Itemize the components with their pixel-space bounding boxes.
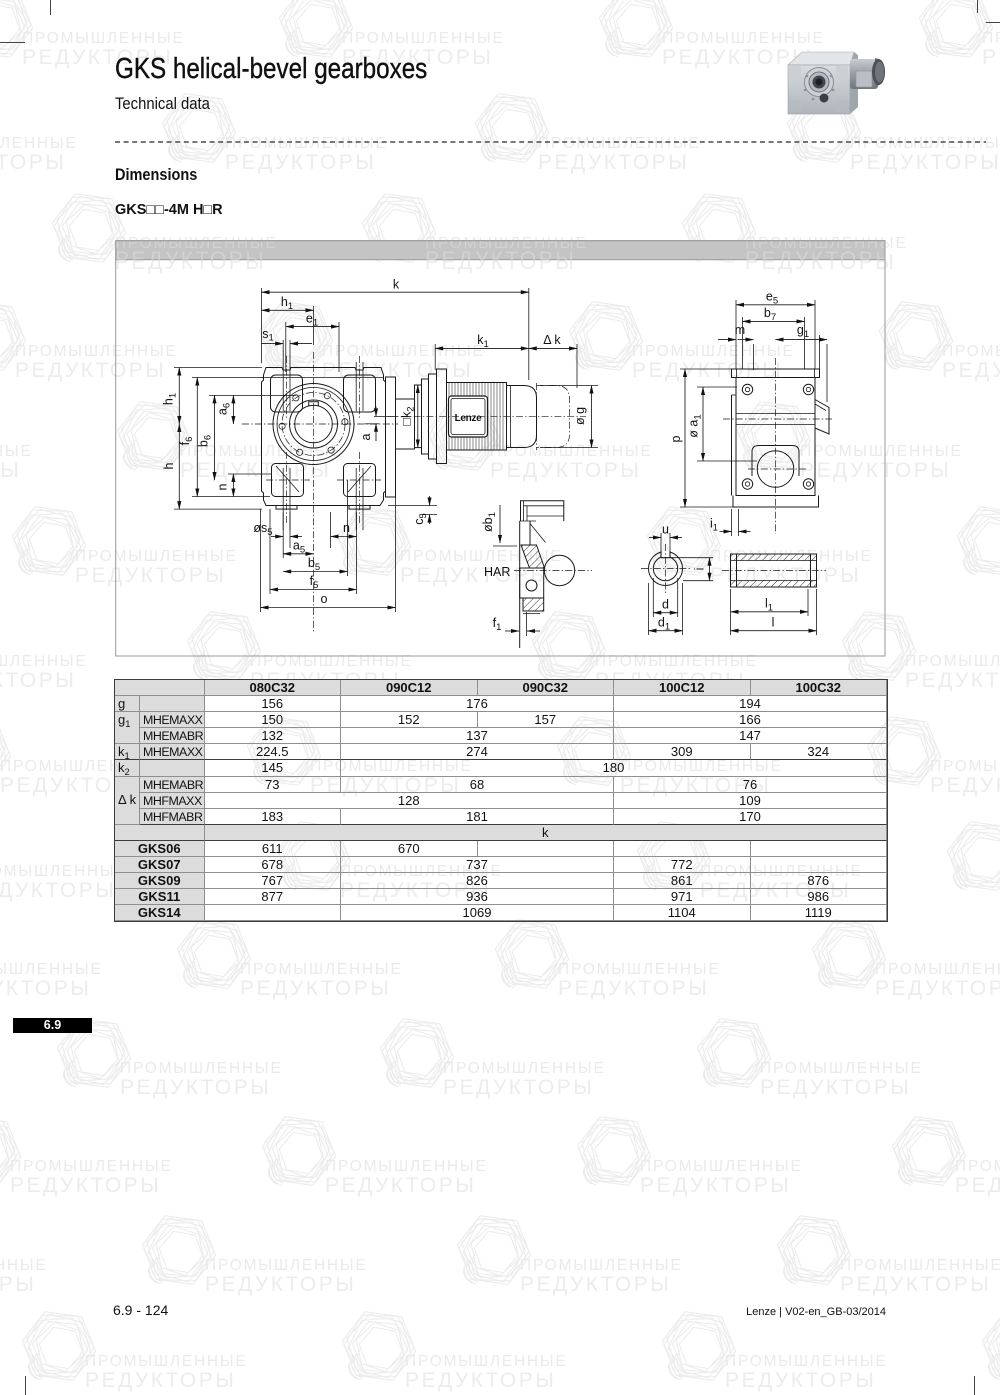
svg-text:a5: a5 xyxy=(293,539,305,556)
svg-text:s1: s1 xyxy=(262,327,274,344)
svg-text:Δ k: Δ k xyxy=(543,333,561,347)
svg-text:u: u xyxy=(662,523,669,537)
svg-text:РЕДУКТОРЫ: РЕДУКТОРЫ xyxy=(425,248,576,271)
svg-text:i1: i1 xyxy=(710,517,718,534)
svg-text:n: n xyxy=(343,521,350,535)
svg-text:b6: b6 xyxy=(197,435,214,447)
svg-text:h1: h1 xyxy=(281,295,293,312)
svg-text:øb1: øb1 xyxy=(481,512,498,532)
svg-text:a: a xyxy=(359,433,373,440)
svg-text:f1: f1 xyxy=(493,616,502,633)
svg-text:e1: e1 xyxy=(306,312,318,329)
svg-text:d: d xyxy=(662,598,669,612)
svg-text:n: n xyxy=(216,483,230,490)
svg-text:c5: c5 xyxy=(412,513,429,525)
svg-text:g1: g1 xyxy=(797,323,809,340)
svg-text:ø a1: ø a1 xyxy=(687,414,704,437)
svg-text:l: l xyxy=(772,616,775,630)
svg-text:РЕДУКТОРЫ: РЕДУКТОРЫ xyxy=(745,248,886,271)
svg-text:p: p xyxy=(669,435,683,442)
svg-text:l1: l1 xyxy=(765,597,773,614)
svg-text:HAR: HAR xyxy=(484,565,510,579)
svg-text:b7: b7 xyxy=(764,306,776,323)
svg-text:h1: h1 xyxy=(162,393,179,405)
svg-text:h: h xyxy=(162,462,176,469)
svg-text:f5: f5 xyxy=(310,574,319,591)
svg-text:e5: e5 xyxy=(766,290,778,307)
svg-text:i: i xyxy=(693,568,707,571)
svg-text:a6: a6 xyxy=(216,403,233,415)
svg-text:Lenze: Lenze xyxy=(455,413,483,424)
svg-text:o: o xyxy=(321,592,328,606)
svg-text:ø g: ø g xyxy=(573,407,587,425)
svg-text:k: k xyxy=(393,278,400,292)
svg-text:РЕДУКТОРЫ: РЕДУКТОРЫ xyxy=(115,248,266,271)
svg-text:d1: d1 xyxy=(658,616,670,633)
svg-text:b5: b5 xyxy=(308,556,320,573)
svg-text:f6: f6 xyxy=(178,437,195,446)
svg-text:m: m xyxy=(735,323,745,337)
svg-text:k1: k1 xyxy=(477,333,489,350)
